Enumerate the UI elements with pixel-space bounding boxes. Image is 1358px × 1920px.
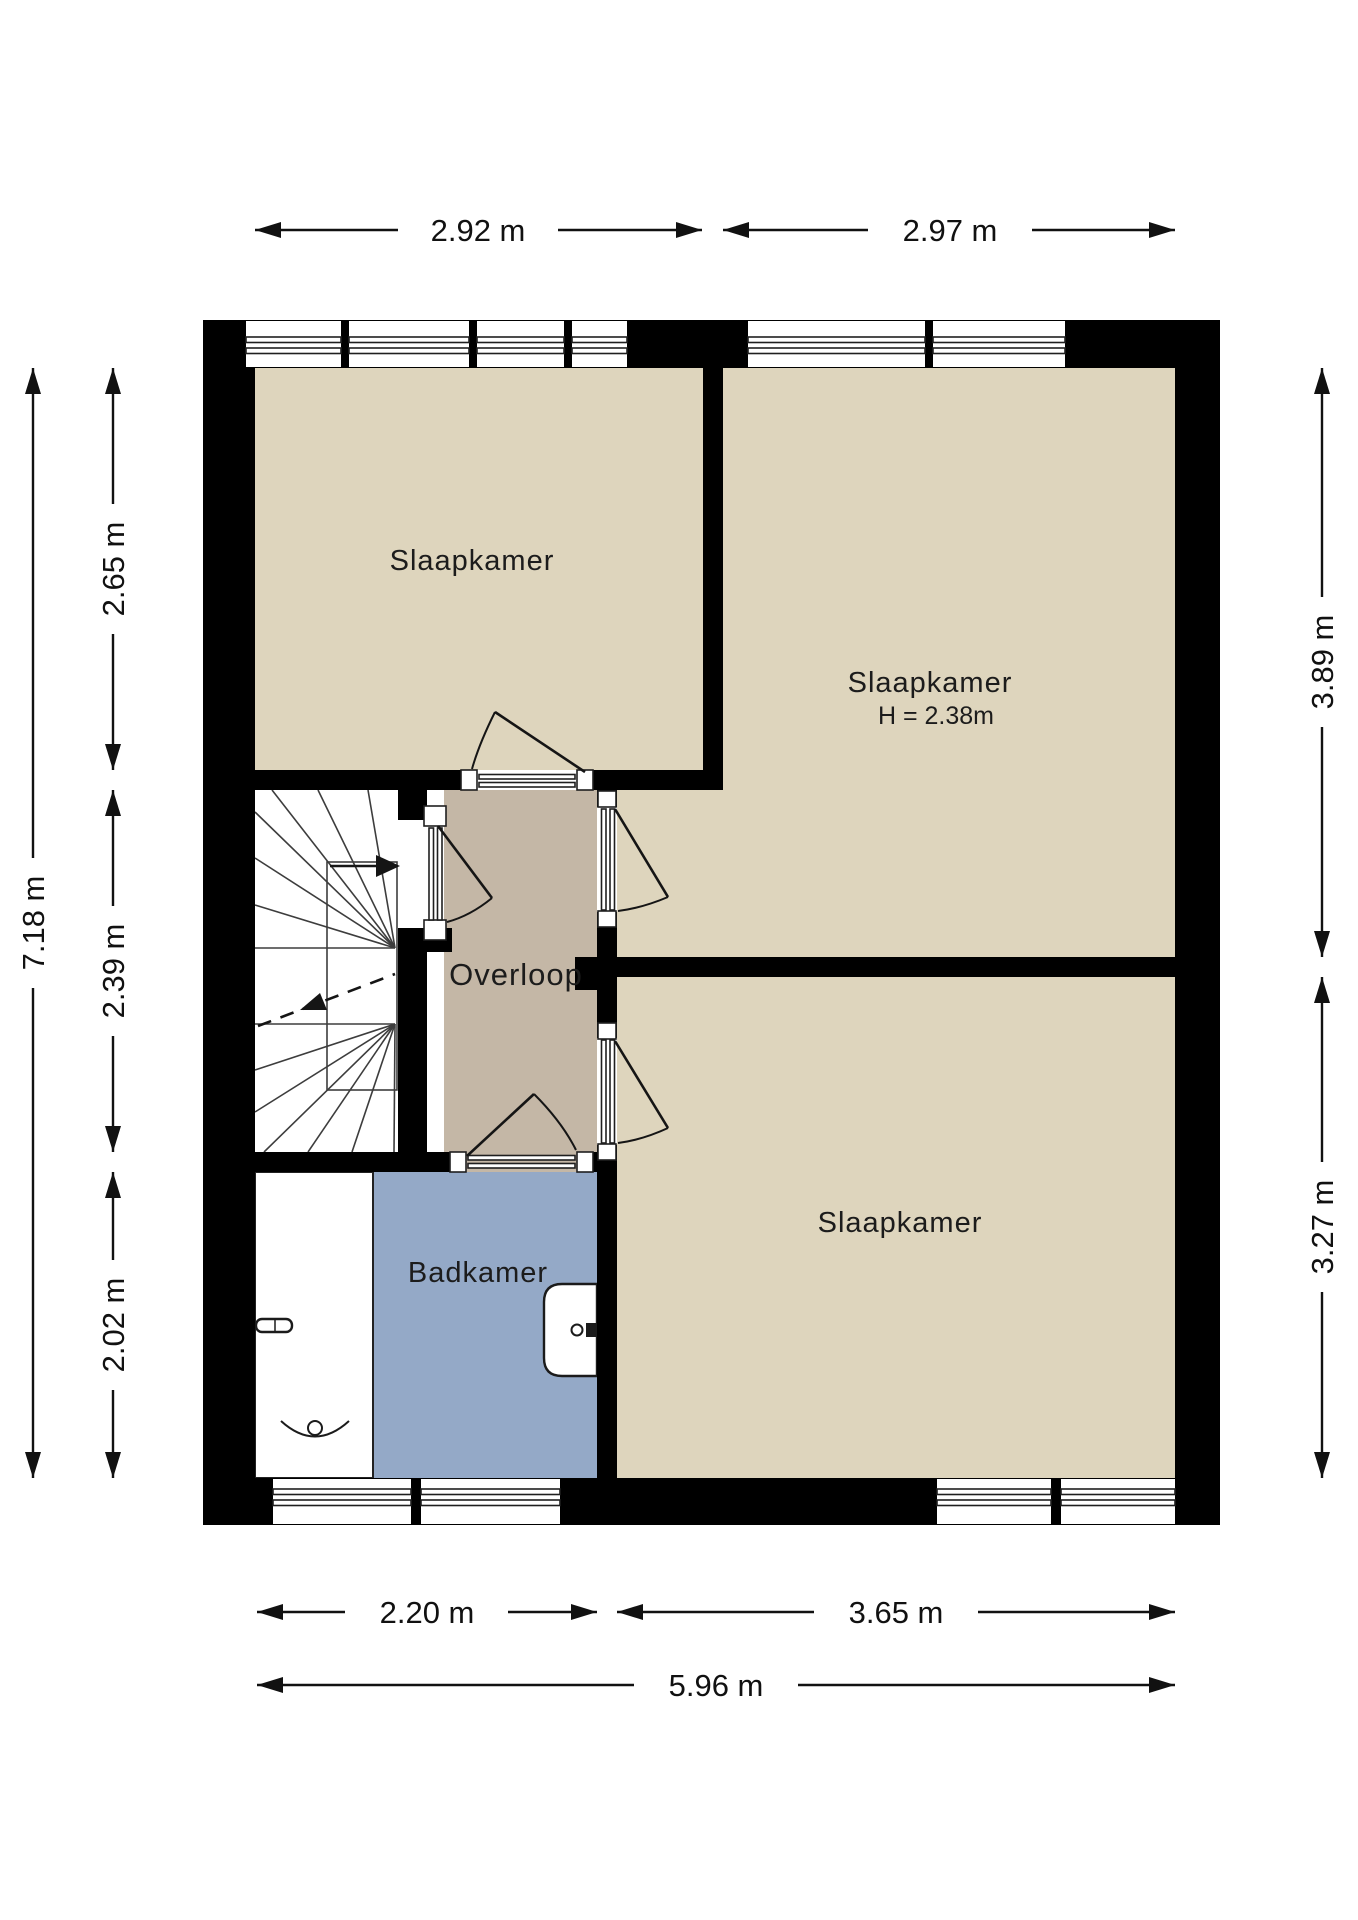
toilet-cistern-icon [586,1323,596,1337]
floor-plan-page: Slaapkamer Slaapkamer H = 2.38m Slaapkam… [0,0,1358,1920]
wall-bedroom1-south-a [203,770,463,790]
bedroom-right-height-note: H = 2.38m [878,702,994,730]
bathroom-label: Badkamer [408,1257,548,1289]
dim-bottom-right-width-label: 3.65 m [849,1595,944,1630]
dim-left-top-height-label: 2.65 m [96,522,131,617]
dim-bottom-left-width: 2.20 m [257,1595,597,1630]
dim-left-top-height: 2.65 m [96,368,131,770]
dim-top-left-width-label: 2.92 m [431,213,526,248]
wall-between-top-bedrooms [703,320,723,790]
wall-top-pier [635,320,738,368]
dim-right-top-height: 3.89 m [1305,368,1340,957]
dim-left-middle-height: 2.39 m [96,790,131,1152]
window-top-right-room [748,321,1065,367]
dim-left-bottom-height-label: 2.02 m [96,1278,131,1373]
dim-top-left-width: 2.92 m [255,213,702,248]
wall-bathroom-north-a [203,1152,450,1172]
wall-landing-east-c [597,1145,617,1478]
dim-right-bottom-height: 3.27 m [1305,977,1340,1478]
dim-bottom-total-width: 5.96 m [257,1668,1175,1703]
landing-label: Overloop [449,957,583,992]
dim-bottom-total-width-label: 5.96 m [669,1668,764,1703]
wall-stairwell-east-b [398,928,427,1152]
dim-bottom-right-width: 3.65 m [617,1595,1175,1630]
wall-right [1175,320,1220,1525]
radiator [256,1319,292,1332]
floor-plan: Slaapkamer Slaapkamer H = 2.38m Slaapkam… [0,0,1358,1920]
bedroom-top-left-label: Slaapkamer [390,545,555,577]
dim-left-middle-height-label: 2.39 m [96,924,131,1019]
wall-between-right-bedrooms [597,957,1175,977]
dim-left-total-height-label: 7.18 m [16,876,51,971]
dim-left-total-height: 7.18 m [16,368,51,1478]
toilet [544,1284,597,1376]
dim-bottom-left-width-label: 2.20 m [380,1595,475,1630]
dim-top-right-width: 2.97 m [723,213,1175,248]
wall-stairwell-east-a [398,790,427,820]
dim-right-top-height-label: 3.89 m [1305,615,1340,710]
dim-right-bottom-height-label: 3.27 m [1305,1180,1340,1275]
bedroom-bottom-right-label: Slaapkamer [818,1207,983,1239]
wall-left [203,320,255,1525]
bedroom-right-label: Slaapkamer [848,667,1013,699]
toilet-flush-icon [572,1325,583,1336]
dim-top-right-width-label: 2.97 m [903,213,998,248]
dim-left-bottom-height: 2.02 m [96,1172,131,1478]
